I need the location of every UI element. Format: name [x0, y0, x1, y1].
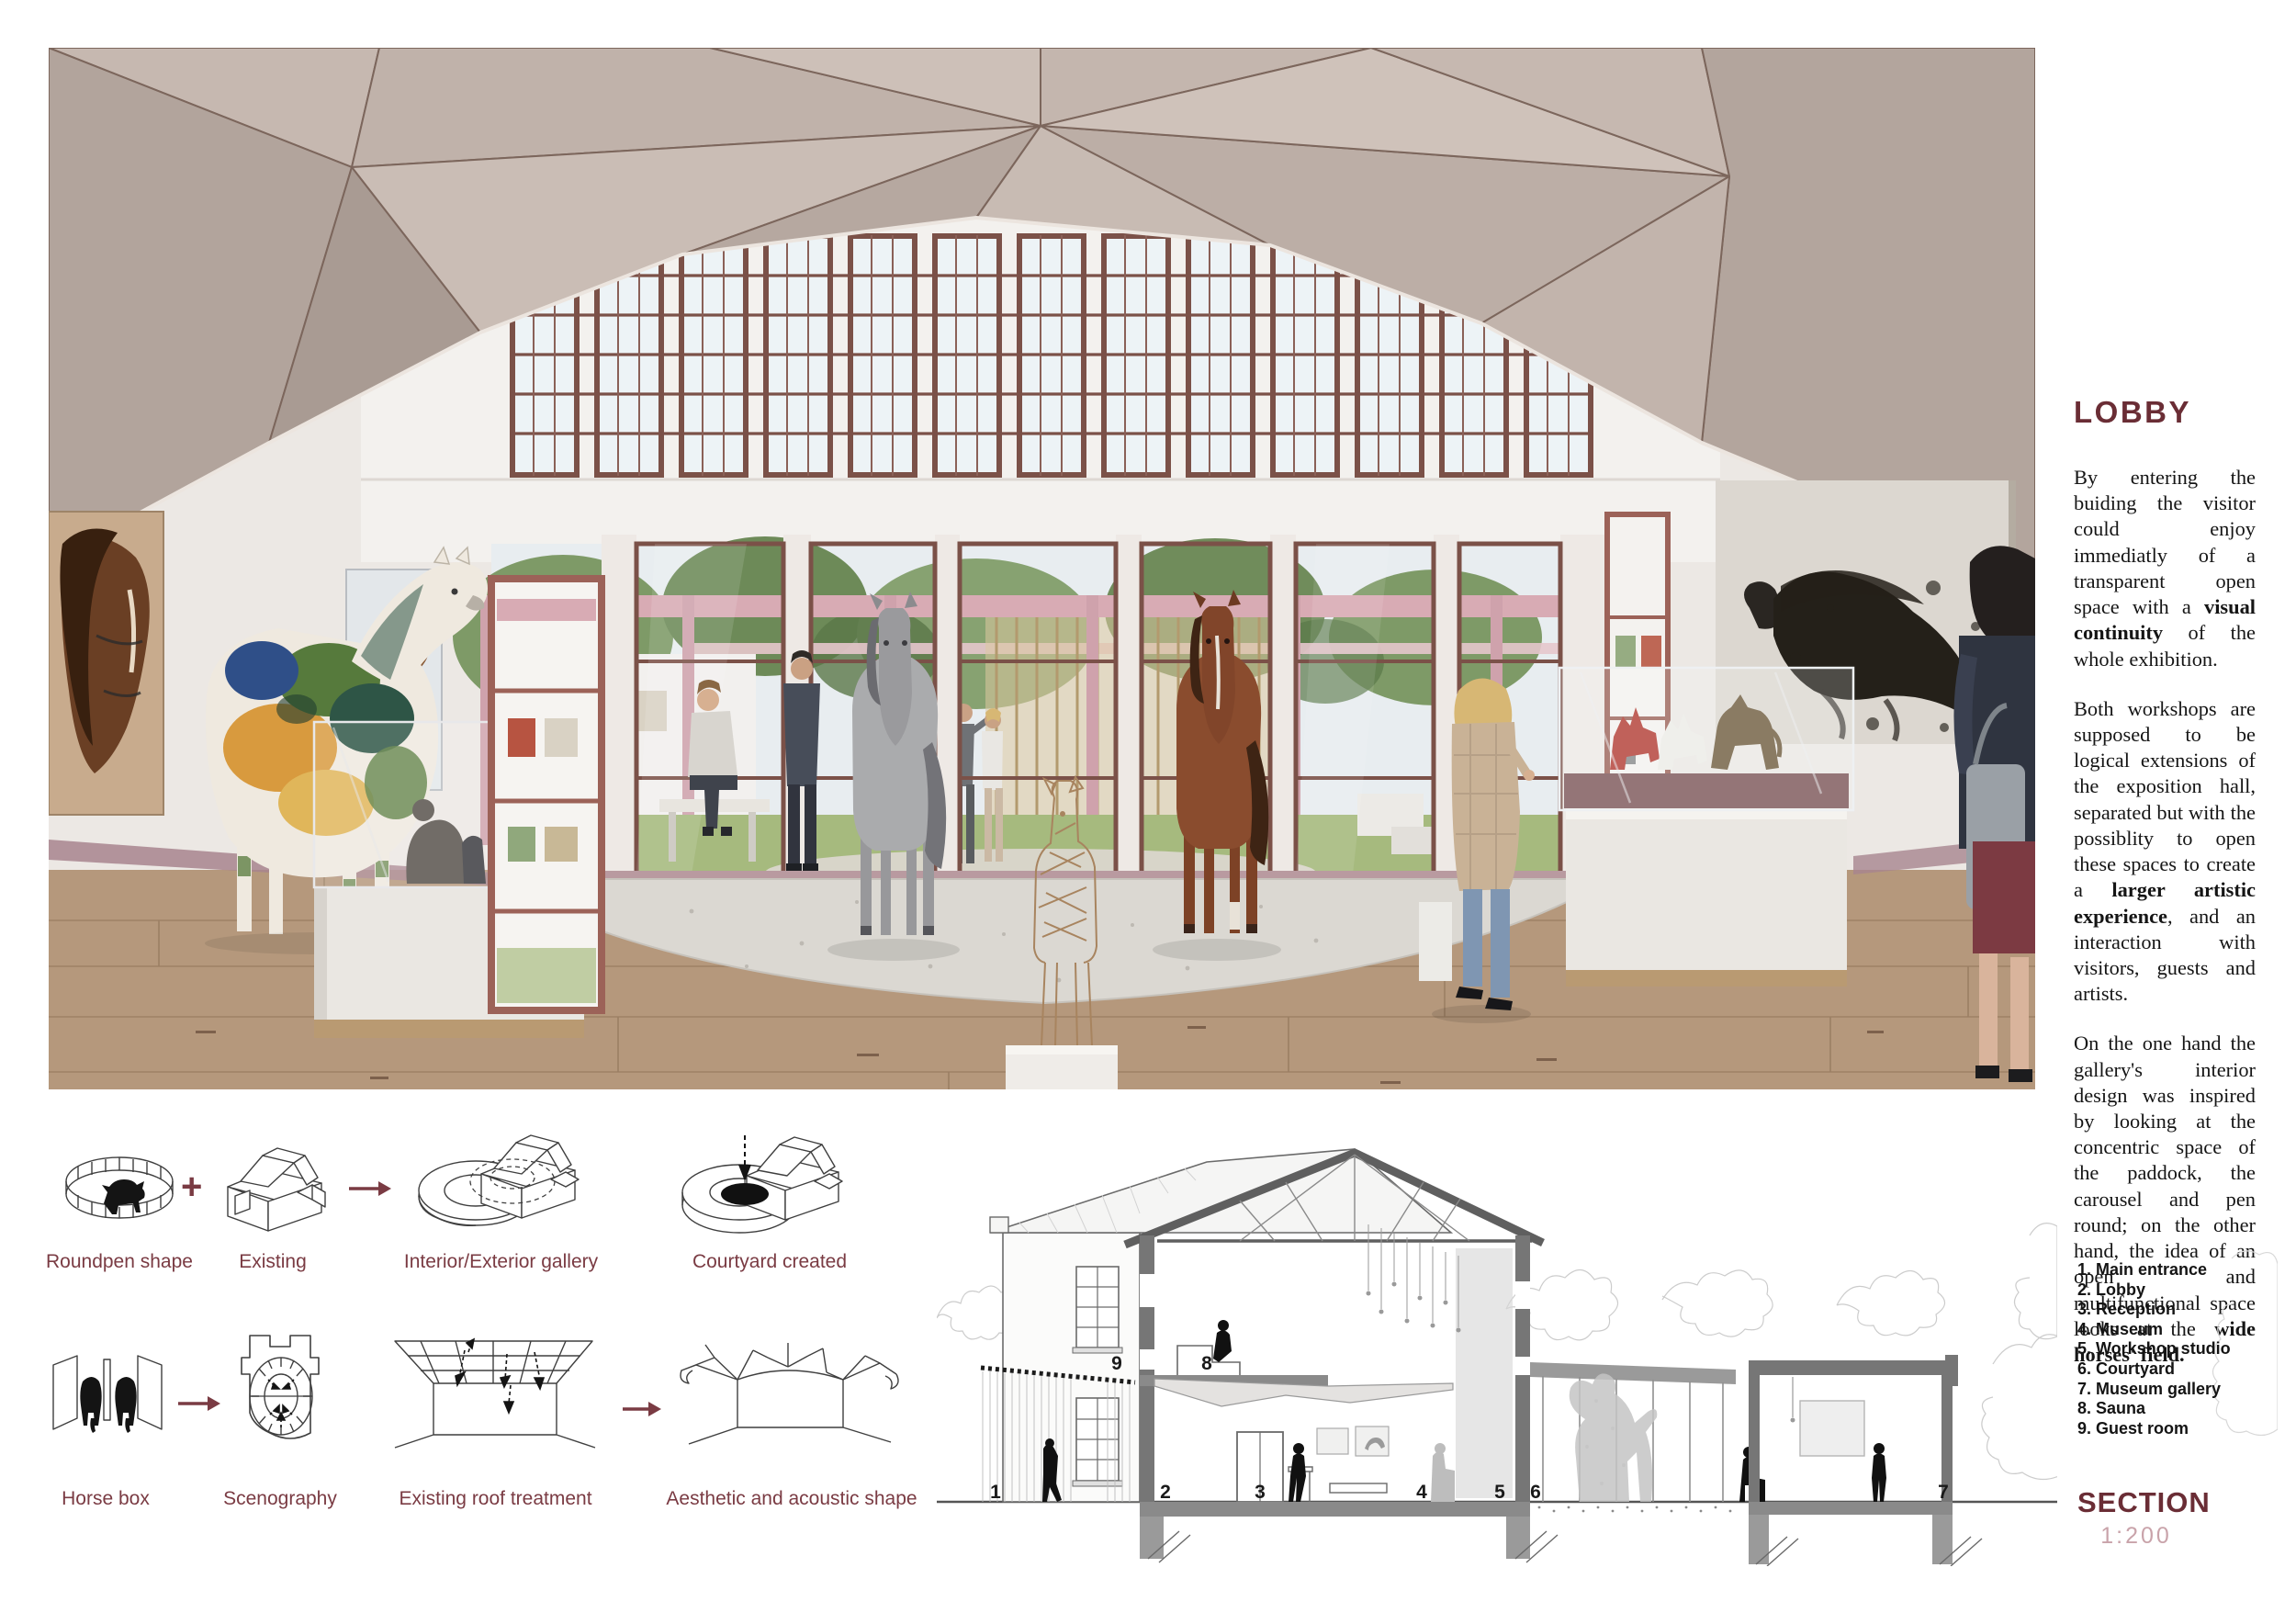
standing-person-gallery	[1872, 1454, 1886, 1503]
diagram-interior-exterior-gallery	[404, 1130, 602, 1242]
marker-5: 5	[1494, 1482, 1505, 1503]
display-stand	[1419, 902, 1452, 981]
label-aesthetic-acoustic: Aesthetic and acoustic shape	[654, 1488, 929, 1510]
left-gallery-window	[491, 579, 602, 1010]
marker-2: 2	[1160, 1482, 1171, 1503]
marker-6: 6	[1530, 1482, 1541, 1503]
arrow-right-2	[176, 1393, 220, 1415]
legend-item-8: 8. Sauna	[2077, 1399, 2243, 1419]
lobby-text-panel: LOBBY By entering the buiding the visito…	[2074, 395, 2256, 1392]
diagram-existing	[209, 1139, 343, 1240]
arrow-right-3	[621, 1398, 661, 1420]
diagram-aesthetic-acoustic-shape	[669, 1323, 912, 1447]
arrow-right-1	[347, 1178, 391, 1200]
section-legend: 1. Main entrance 2. Lobby 3. Reception 4…	[2077, 1260, 2243, 1438]
diagram-roundpen	[51, 1137, 188, 1240]
marker-9: 9	[1111, 1353, 1122, 1374]
label-interior-exterior: Interior/Exterior gallery	[393, 1251, 609, 1273]
label-horse-box: Horse box	[32, 1488, 179, 1510]
label-scenography: Scenography	[207, 1488, 354, 1510]
marker-1: 1	[990, 1482, 1001, 1503]
marker-4: 4	[1416, 1482, 1427, 1503]
lobby-paragraphs: By entering the buiding the visitor coul…	[2074, 465, 2256, 1368]
section-title: SECTION	[2077, 1486, 2206, 1519]
marker-3: 3	[1255, 1482, 1266, 1503]
legend-item-4: 4. Museum	[2077, 1320, 2243, 1340]
diagram-existing-roof-treatment	[377, 1330, 611, 1449]
label-roundpen-shape: Roundpen shape	[37, 1251, 202, 1273]
section-title-block: SECTION 1:200	[2077, 1486, 2206, 1550]
diagram-scenography	[228, 1330, 333, 1449]
rearing-horse-silhouette	[1570, 1373, 1658, 1502]
label-existing-roof-treatment: Existing roof treatment	[378, 1488, 613, 1510]
diagram-courtyard-created	[666, 1128, 872, 1242]
lobby-paragraph: Both workshops are supposed to be logica…	[2074, 696, 2256, 1008]
label-existing: Existing	[204, 1251, 342, 1273]
legend-item-3: 3. Reception	[2077, 1300, 2243, 1320]
foundations	[1140, 1502, 1982, 1566]
courtyard-corridor-section	[1530, 1362, 1765, 1512]
seated-person-gray	[1431, 1451, 1455, 1502]
label-courtyard-created: Courtyard created	[659, 1251, 880, 1273]
presentation-board: LOBBY By entering the buiding the visito…	[0, 0, 2296, 1624]
horse-silhouette	[102, 1179, 145, 1214]
section-scale: 1:200	[2077, 1523, 2195, 1550]
section-drawing: 1 2 3 4 5 6 7 8 9	[937, 1125, 2057, 1566]
horse-head-painting	[49, 512, 163, 815]
gallery-section	[1749, 1355, 1958, 1502]
lobby-heading: LOBBY	[2074, 395, 2256, 430]
diagram-horse-box	[46, 1334, 170, 1442]
right-display-case	[1559, 668, 1853, 987]
marker-8: 8	[1201, 1353, 1212, 1374]
lobby-paragraph: By entering the buiding the visitor coul…	[2074, 465, 2256, 672]
marker-7: 7	[1938, 1482, 1949, 1503]
lobby-render	[49, 48, 2035, 1089]
legend-item-1: 1. Main entrance	[2077, 1260, 2243, 1280]
legend-item-9: 9. Guest room	[2077, 1419, 2243, 1439]
legend-item-2: 2. Lobby	[2077, 1280, 2243, 1301]
legend-item-6: 6. Courtyard	[2077, 1359, 2243, 1380]
legend-item-7: 7. Museum gallery	[2077, 1380, 2243, 1400]
plus-operator: +	[181, 1168, 202, 1205]
legend-item-5: 5. Workshop studio	[2077, 1339, 2243, 1359]
